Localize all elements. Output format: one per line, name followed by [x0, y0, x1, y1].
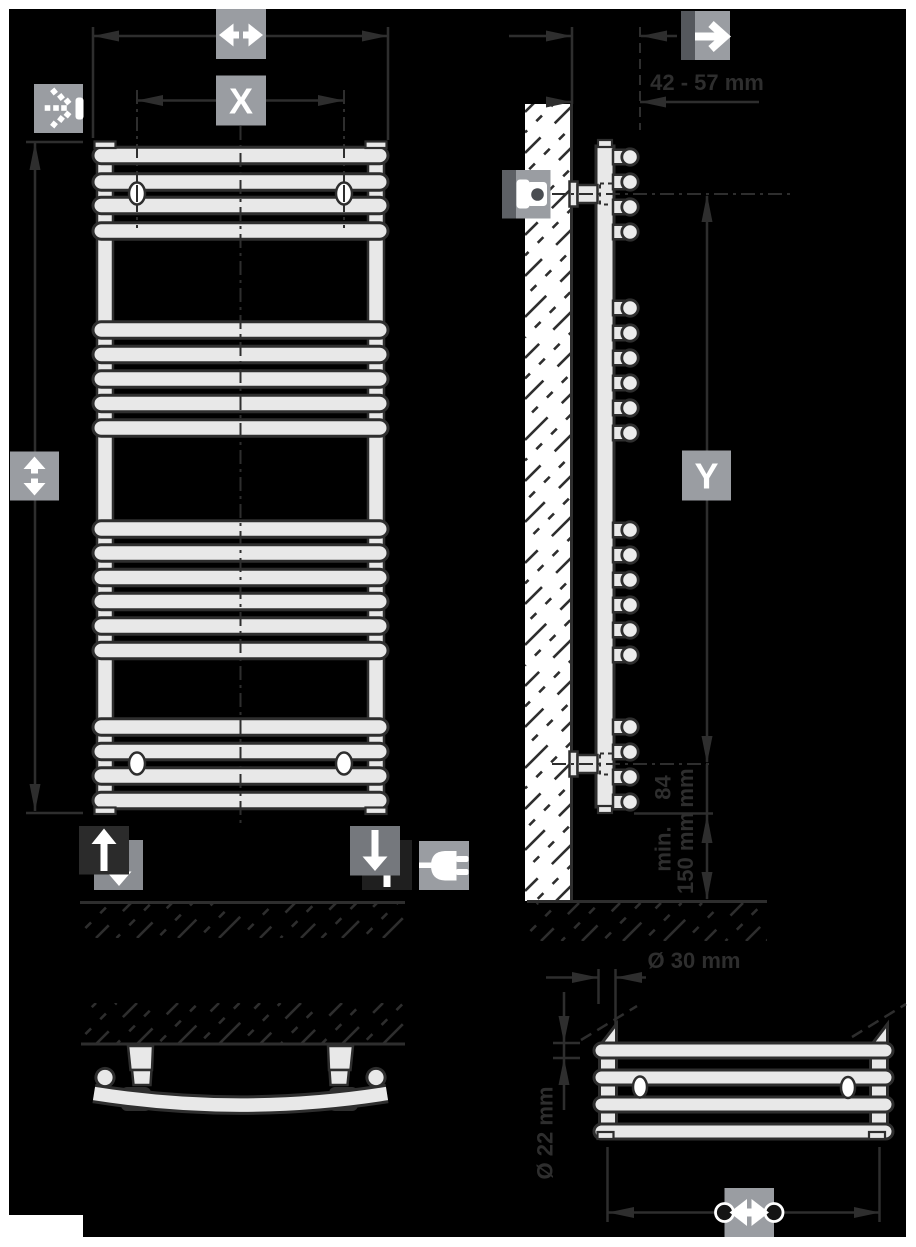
svg-text:84: 84 [651, 775, 676, 800]
svg-text:mm: mm [673, 768, 698, 807]
svg-text:42 - 57 mm: 42 - 57 mm [650, 70, 764, 95]
svg-text:Ø 30 mm: Ø 30 mm [648, 948, 741, 973]
svg-text:150 mm: 150 mm [673, 812, 698, 894]
svg-text:Y: Y [694, 456, 718, 497]
svg-text:Ø 22 mm: Ø 22 mm [533, 1087, 558, 1180]
svg-text:X: X [229, 81, 253, 122]
svg-text:min.: min. [651, 826, 676, 871]
